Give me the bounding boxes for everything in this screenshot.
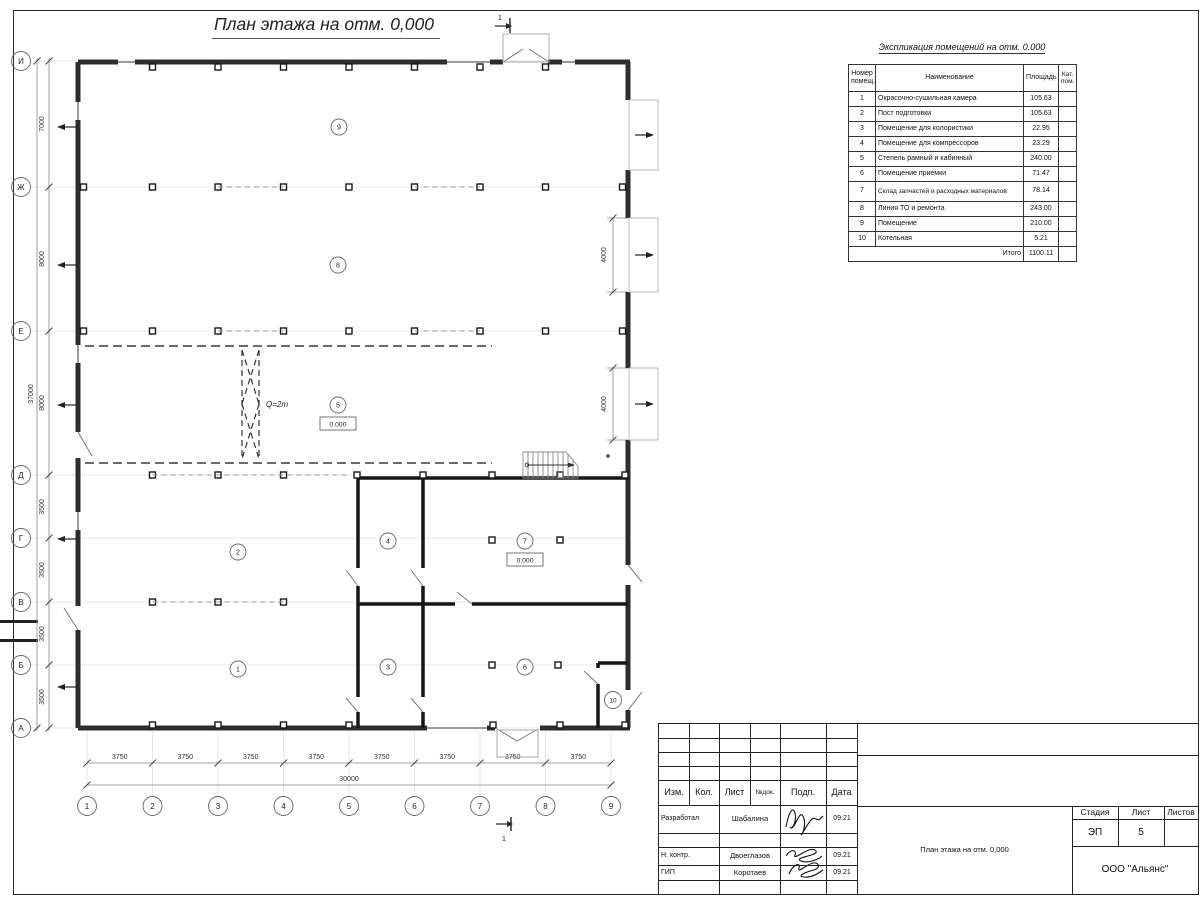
total-label: Итого (849, 247, 1024, 262)
room-schedule-table: Номер помещ. Наименование Площадь Кат. п… (848, 64, 1077, 262)
col-ndok: №док. (750, 780, 780, 805)
col-header-cat: Кат. пом. (1059, 65, 1077, 92)
col-kol: Кол. (689, 780, 719, 805)
col-axis-label: 5 (347, 802, 352, 811)
room-num: 10 (849, 232, 876, 247)
room-cat (1059, 167, 1077, 182)
room-number: 4 (386, 539, 390, 546)
room-num: 9 (849, 217, 876, 232)
v-dim: 3500 (39, 499, 46, 515)
col-axis-label: 8 (543, 802, 548, 811)
row-axis-label: Е (18, 327, 23, 336)
row-axis-label: И (18, 57, 24, 66)
table-row: 9Помещение210.00 (849, 217, 1077, 232)
col-list: Лист (719, 780, 750, 805)
staircase (523, 452, 578, 478)
room-area: 105.63 (1024, 92, 1059, 107)
structural-columns (81, 64, 629, 728)
section-number: 1 (502, 836, 506, 843)
room-name: Окрасочно-сушильная камера (876, 92, 1024, 107)
row-axis-label: Б (18, 661, 23, 670)
room-num: 8 (849, 202, 876, 217)
row-axis-label: Г (19, 534, 24, 543)
col-axis-label: 2 (150, 802, 155, 811)
window-segments (78, 62, 575, 728)
room-num: 1 (849, 92, 876, 107)
col-axis-label: 4 (281, 802, 286, 811)
table-row: 1Окрасочно-сушильная камера105.63 (849, 92, 1077, 107)
door-swings (64, 34, 642, 757)
table-row: 6Помещение приемки71.47 (849, 167, 1077, 182)
table-row: 4Помещение для компрессоров23.29 (849, 137, 1077, 152)
room-cat (1059, 107, 1077, 122)
h-dim: 3750 (571, 754, 587, 761)
sheet-value: 5 (1118, 819, 1164, 846)
v-total-dim: 37000 (28, 384, 35, 404)
v-dim: 3500 (39, 689, 46, 705)
exterior-walls (78, 62, 630, 728)
interior-walls (358, 478, 628, 728)
table-row: 8Линия ТО и ремонта243.00 (849, 202, 1077, 217)
room-cat (1059, 152, 1077, 167)
signature (781, 844, 826, 881)
room-name: Степель рамный и кабинный (876, 152, 1024, 167)
elevation-value: 0.000 (516, 558, 533, 565)
table-row: 10Котельная5.21 (849, 232, 1077, 247)
col-axis-label: 6 (412, 802, 417, 811)
h-dim: 3750 (112, 754, 128, 761)
room-cat (1059, 202, 1077, 217)
room-number: 1 (236, 667, 240, 674)
row-axis-label: Д (18, 471, 24, 480)
room-cat (1059, 92, 1077, 107)
col-header-num: Номер помещ. (849, 65, 876, 92)
table-row: 2Пост подготовки105.63 (849, 107, 1077, 122)
room-cat (1059, 182, 1077, 202)
elevation-value: 0.000 (329, 422, 346, 429)
signer-date: 09.21 (827, 847, 857, 865)
v-dim: 7000 (39, 116, 46, 132)
schedule-title: Экспликация помещений на отм. 0.000 (848, 42, 1076, 52)
room-area: 78.14 (1024, 182, 1059, 202)
col-axis-label: 7 (478, 802, 483, 811)
room-number: 3 (386, 665, 390, 672)
room-number: 9 (337, 125, 341, 132)
col-header-area: Площадь (1024, 65, 1059, 92)
gate-aprons (629, 100, 658, 440)
room-area: 5.21 (1024, 232, 1059, 247)
v-dim: 8000 (39, 251, 46, 267)
table-row: 3Помещение для колористики22.95 (849, 122, 1077, 137)
room-number: 6 (523, 665, 527, 672)
tie-lines (153, 187, 481, 602)
elevation-marks: 0.000 0.000 (320, 417, 543, 566)
room-area: 243.00 (1024, 202, 1059, 217)
col-izm: Изм. (659, 780, 689, 805)
signer-role: Разработал (661, 805, 719, 833)
h-dim: 3750 (374, 754, 390, 761)
room-num: 2 (849, 107, 876, 122)
sheets-label: Листов (1164, 806, 1198, 819)
survey-point (607, 455, 610, 458)
room-num: 3 (849, 122, 876, 137)
row-axis-label: В (18, 598, 23, 607)
room-name: Помещение для компрессоров (876, 137, 1024, 152)
room-name: Помещение (876, 217, 1024, 232)
room-area: 23.29 (1024, 137, 1059, 152)
sheet-label: Лист (1118, 806, 1164, 819)
signer-date: 09.21 (827, 805, 857, 833)
room-num: 6 (849, 167, 876, 182)
room-name: Линия ТО и ремонта (876, 202, 1024, 217)
room-labels: 1 2 3 4 5 6 7 8 9 10 (230, 119, 622, 709)
gate-dim: 4000 (601, 247, 608, 263)
crane-runway (85, 346, 492, 463)
company-name: ООО "Альянс" (1072, 846, 1198, 894)
table-row: 7Склад запчастей и расходных материалов7… (849, 182, 1077, 202)
table-row: 5Степель рамный и кабинный240.00 (849, 152, 1077, 167)
h-dim: 3750 (243, 754, 259, 761)
room-area: 22.95 (1024, 122, 1059, 137)
doc-title: План этажа на отм. 0,000 (857, 806, 1072, 894)
title-block: Изм. Кол. Лист №док. Подп. Дата Разработ… (658, 723, 1199, 895)
stage-label: Стадия (1072, 806, 1118, 819)
room-name: Склад запчастей и расходных материалов (876, 182, 1024, 202)
crane-symbol (242, 350, 259, 459)
signer-name: Шабалина (720, 805, 780, 833)
stage-value: ЭП (1072, 819, 1118, 846)
crane-capacity-label: Q=2т (266, 400, 288, 409)
total-cat (1059, 247, 1077, 262)
col-data: Дата (826, 780, 857, 805)
schedule-header-row: Номер помещ. Наименование Площадь Кат. п… (849, 65, 1077, 92)
drawing-sheet: План этажа на отм. 0,000 (0, 0, 1200, 900)
total-value: 1100.11 (1024, 247, 1059, 262)
signer-name: Двоеглазов (720, 847, 780, 865)
room-area: 105.63 (1024, 107, 1059, 122)
signature (782, 803, 825, 837)
col-axis-label: 1 (85, 802, 90, 811)
row-axis-label: Ж (17, 183, 25, 192)
room-area: 210.00 (1024, 217, 1059, 232)
col-axis-label: 9 (609, 802, 614, 811)
room-num: 5 (849, 152, 876, 167)
room-num: 7 (849, 182, 876, 202)
h-dim: 3750 (440, 754, 456, 761)
section-number: 1 (498, 15, 502, 22)
col-header-name: Наименование (876, 65, 1024, 92)
room-cat (1059, 232, 1077, 247)
room-number: 2 (236, 550, 240, 557)
h-dim: 3750 (178, 754, 194, 761)
row-axis-label: А (18, 724, 24, 733)
room-area: 240.00 (1024, 152, 1059, 167)
room-number: 10 (609, 698, 617, 705)
room-cat (1059, 137, 1077, 152)
v-dim: 3500 (39, 562, 46, 578)
signer-role: ГИП (661, 865, 719, 880)
room-name: Пост подготовки (876, 107, 1024, 122)
col-axis-label: 3 (216, 802, 221, 811)
signer-role: Н. контр. (661, 847, 719, 865)
room-name: Котельная (876, 232, 1024, 247)
h-dim: 3750 (309, 754, 325, 761)
room-number: 7 (523, 539, 527, 546)
gate-dim: 4000 (601, 396, 608, 412)
room-cat (1059, 217, 1077, 232)
signer-name: Коротаев (720, 865, 780, 880)
v-dim: 3500 (39, 626, 46, 642)
room-name: Помещение приемки (876, 167, 1024, 182)
signer-date: 09.21 (827, 865, 857, 880)
room-cat (1059, 122, 1077, 137)
axis-markers: И Ж Е Д Г В Б А 1 2 3 4 5 6 7 8 9 (12, 52, 621, 816)
h-total-dim: 30000 (339, 776, 359, 783)
col-podp: Подп. (780, 780, 826, 805)
room-name: Помещение для колористики (876, 122, 1024, 137)
section-mark-top: 1 (495, 15, 512, 33)
room-number: 8 (336, 263, 340, 270)
room-area: 71.47 (1024, 167, 1059, 182)
room-num: 4 (849, 137, 876, 152)
schedule-total-row: Итого 1100.11 (849, 247, 1077, 262)
section-mark-bottom: 1 (496, 817, 513, 843)
room-number: 5 (336, 403, 340, 410)
v-dim: 8000 (39, 395, 46, 411)
